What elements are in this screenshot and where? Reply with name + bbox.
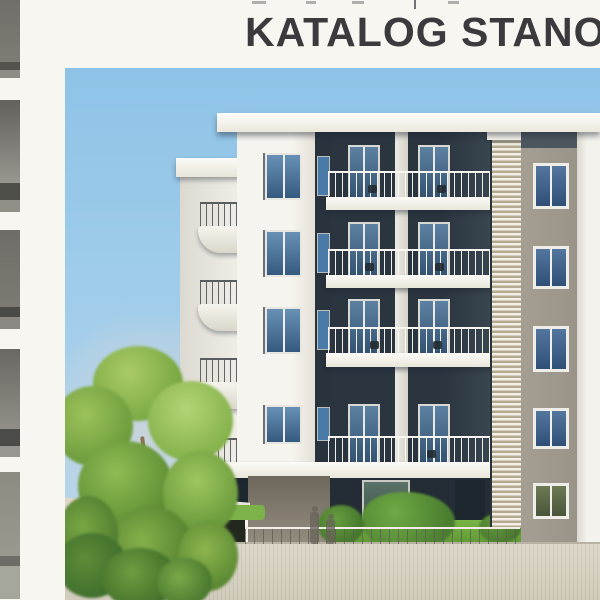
- balcony-slab: [326, 353, 496, 367]
- louver-screen: [490, 138, 523, 528]
- balcony-furniture: [435, 263, 444, 271]
- page-edge-segment: [0, 446, 20, 457]
- page-title: KATALOG STANOV: [245, 11, 600, 54]
- page-edge-segment: [0, 307, 20, 317]
- tower-window: [265, 153, 302, 200]
- page-edge-strip: [0, 0, 20, 600]
- page-edge-segment: [0, 329, 20, 349]
- page-edge-segment: [0, 62, 20, 70]
- balcony-railing: [328, 436, 492, 464]
- balcony-railing: [328, 249, 492, 277]
- tower-window: [265, 307, 302, 354]
- balcony-slab: [326, 275, 496, 288]
- balcony-slab: [326, 197, 496, 210]
- page-edge-segment: [0, 349, 20, 429]
- page-edge-segment: [0, 317, 20, 329]
- side-wall-top-band: [521, 132, 577, 148]
- tower-window: [265, 405, 302, 444]
- side-wall-window: [533, 246, 569, 289]
- foreground-bush: [65, 523, 217, 600]
- page-edge-segment: [0, 70, 20, 78]
- page-edge-segment: [0, 0, 20, 62]
- page-edge-segment: [0, 472, 20, 556]
- page-edge-segment: [0, 429, 20, 446]
- page-edge-segment: [0, 78, 20, 100]
- balcony-railing: [328, 327, 492, 355]
- page-edge-segment: [0, 457, 20, 472]
- side-wall-window: [533, 408, 569, 449]
- page-edge-segment: [0, 200, 20, 212]
- page-edge-segment: [0, 566, 20, 599]
- building-rendering: [65, 68, 600, 600]
- page-edge-segment: [0, 230, 20, 307]
- balcony-furniture: [365, 263, 374, 271]
- wall-railing: [245, 527, 520, 544]
- page-edge-segment: [0, 556, 20, 566]
- balcony-furniture: [437, 185, 446, 193]
- tower-window: [265, 230, 302, 277]
- page-edge-segment: [0, 100, 20, 183]
- catalog-page: KATALOG STANOV: [0, 0, 600, 600]
- balcony-railing: [328, 171, 492, 199]
- side-wall-window: [533, 483, 569, 519]
- balcony-furniture: [433, 341, 442, 349]
- corner-column: [577, 130, 600, 542]
- side-wall-window: [533, 163, 569, 209]
- roof-slab: [217, 113, 600, 132]
- balcony-furniture: [427, 450, 436, 458]
- page-edge-segment: [0, 212, 20, 230]
- person-silhouette: [308, 506, 342, 546]
- balcony-furniture: [368, 185, 377, 193]
- side-wall-window: [533, 326, 569, 372]
- balcony-furniture: [370, 341, 379, 349]
- page-edge-segment: [0, 183, 20, 200]
- retaining-wall: [205, 542, 600, 600]
